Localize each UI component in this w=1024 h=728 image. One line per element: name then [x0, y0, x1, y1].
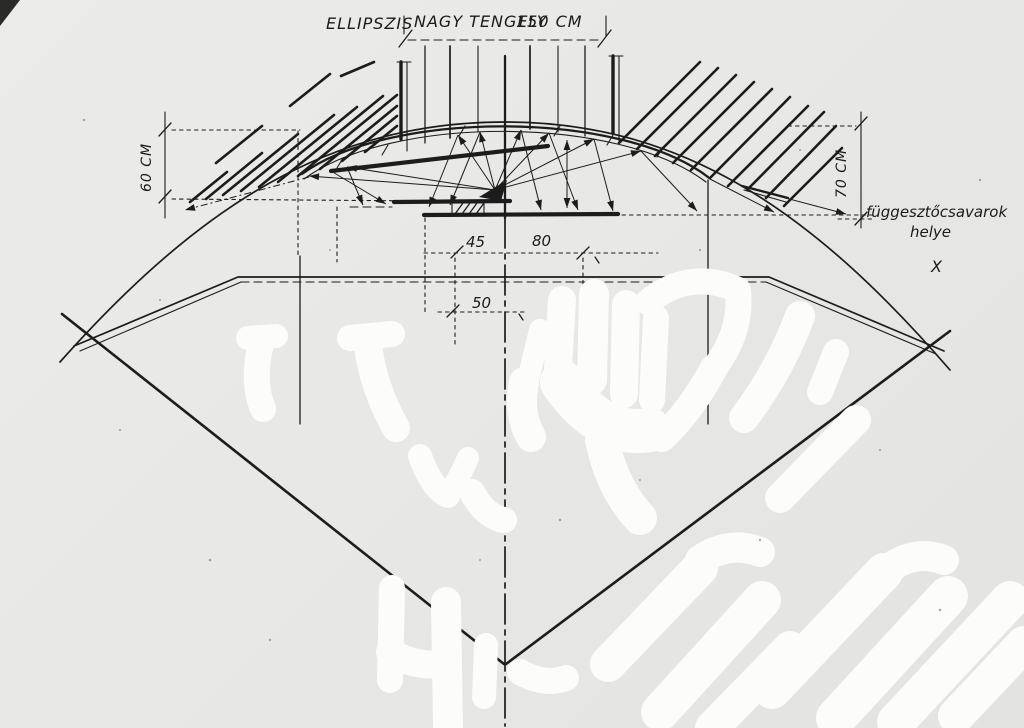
hatched-block	[452, 203, 484, 214]
label-dim-50: 50	[472, 294, 491, 312]
label-ellipszis: ELLIPSZIS	[326, 14, 413, 33]
ceiling-opening-walls	[397, 56, 623, 151]
scan-corner-mark	[0, 0, 20, 26]
note-x-mark: X	[930, 257, 943, 276]
arrowhead	[184, 204, 195, 213]
arrowhead	[564, 140, 571, 150]
blueprint-canvas: ELLIPSZIS NAGY TENGELY 150 CM 60 CM 70 C…	[0, 0, 1024, 728]
label-axis-value: 150 CM	[516, 12, 583, 31]
scanned-drawing: ELLIPSZIS NAGY TENGELY 150 CM 60 CM 70 C…	[0, 0, 1024, 728]
arrowhead	[571, 199, 581, 211]
dimension-70cm	[788, 112, 872, 228]
whiteout-marks	[248, 281, 1024, 728]
flat-mirror	[331, 146, 548, 171]
arrowhead	[607, 200, 616, 211]
note-line1: függesztőcsavarok	[866, 203, 1008, 221]
label-dim-80: 80	[532, 232, 551, 250]
arrowhead	[535, 199, 544, 210]
arrowhead	[376, 196, 388, 207]
light-rays	[184, 129, 847, 218]
arrowhead	[835, 208, 846, 217]
arrowhead	[564, 198, 571, 208]
labels: ELLIPSZIS NAGY TENGELY 150 CM 60 CM 70 C…	[139, 12, 1008, 312]
hatching-right	[619, 62, 842, 206]
label-dim-45: 45	[466, 233, 485, 251]
label-dim-left: 60 CM	[139, 143, 155, 192]
label-dim-right: 70 CM	[834, 149, 850, 198]
arrowhead	[309, 173, 319, 181]
note-line2: helye	[910, 223, 951, 241]
